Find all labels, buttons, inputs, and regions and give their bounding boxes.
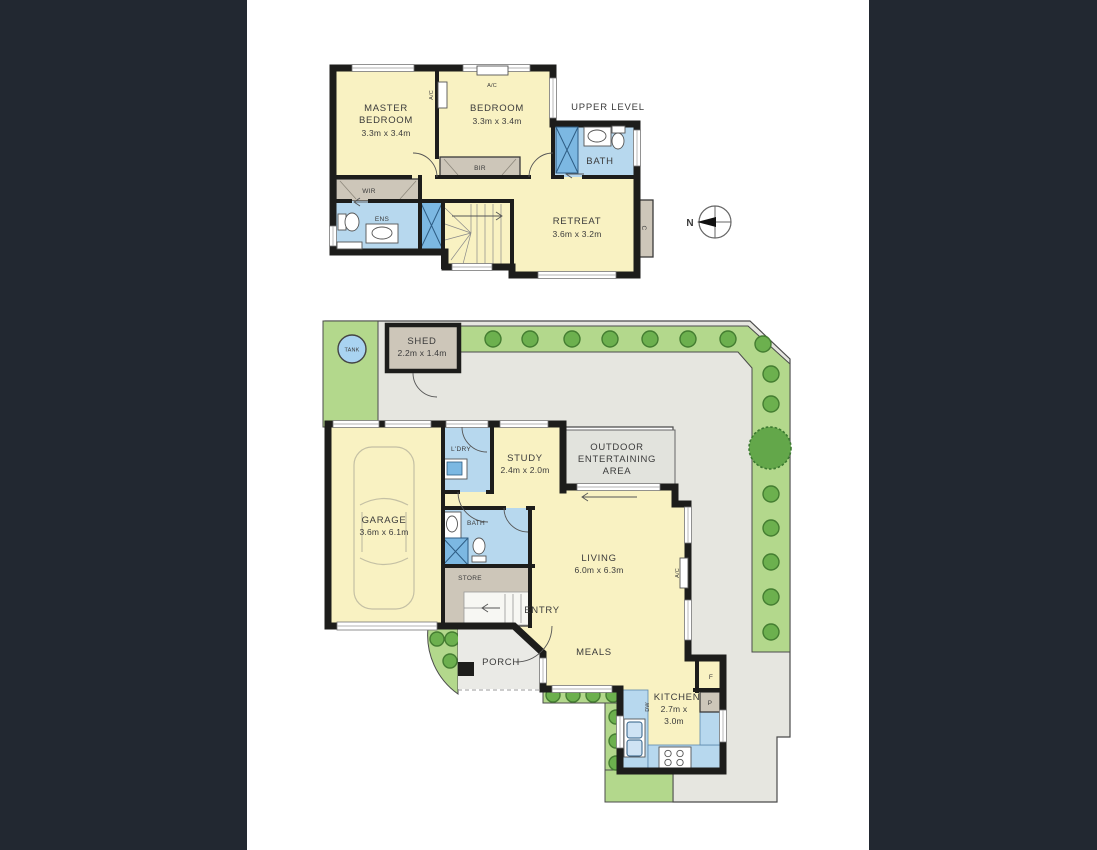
garden-bottom-patch — [605, 770, 673, 802]
label-study-dims: 2.4m x 2.0m — [501, 465, 550, 475]
sink-icon — [624, 719, 645, 757]
label-living-dims: 6.0m x 6.3m — [575, 565, 624, 575]
pantry: P — [700, 692, 720, 712]
basin-icon-ens — [366, 224, 398, 243]
label-retreat-dims: 3.6m x 3.2m — [553, 229, 602, 239]
label-closet-c: C — [640, 226, 647, 231]
label-kitchen: KITCHEN — [654, 692, 701, 703]
label-meals: MEALS — [576, 647, 612, 658]
tree-icon — [749, 427, 791, 469]
compass-icon: N — [686, 206, 731, 238]
tank: TANK — [338, 335, 366, 363]
floorplan-page: A/C A/C MASTER BEDROOM — [0, 0, 1097, 850]
label-laundry: L'DRY — [451, 446, 471, 453]
label-living: LIVING — [581, 553, 616, 564]
basin-icon-bath-ground — [444, 512, 461, 538]
label-master-line1: MASTER — [364, 103, 408, 114]
label-garage-dims: 3.6m x 6.1m — [360, 527, 409, 537]
label-wir: WIR — [362, 188, 376, 195]
label-bath-ground: BATH — [467, 520, 485, 527]
label-master-dims: 3.3m x 3.4m — [362, 128, 411, 138]
room-laundry — [443, 424, 492, 492]
label-tank: TANK — [344, 348, 359, 354]
label-shed-dims: 2.2m x 1.4m — [398, 348, 447, 358]
label-bir: BIR — [474, 165, 486, 172]
label-bath-upper: BATH — [586, 156, 613, 167]
label-bedroom-dims: 3.3m x 3.4m — [473, 116, 522, 126]
label-outdoor-line1: OUTDOOR — [590, 442, 643, 453]
label-shed: SHED — [407, 336, 436, 347]
cooktop-icon — [659, 747, 691, 768]
label-kitchen-dims1: 2.7m x — [661, 704, 688, 714]
toilet-icon-bath-upper — [612, 126, 625, 149]
laundry-trough-icon — [444, 459, 467, 479]
label-dishwasher: DW — [645, 702, 651, 712]
label-garage: GARAGE — [362, 515, 407, 526]
upper-level-plan: A/C A/C MASTER BEDROOM — [320, 55, 745, 295]
shower-icon-ens — [420, 201, 443, 250]
label-porch: PORCH — [482, 657, 520, 668]
label-ens: ENS — [375, 216, 390, 223]
shower-icon-bath-ground — [443, 538, 468, 565]
upper-level-title: UPPER LEVEL — [571, 102, 645, 113]
ground-level-plan: TANK SHED 2.2m x 1.4m — [315, 315, 800, 810]
ac-wall-label: A/C — [429, 90, 435, 100]
label-entry: ENTRY — [524, 605, 560, 616]
label-retreat: RETREAT — [553, 216, 602, 227]
room-wir — [336, 179, 420, 201]
label-outdoor-line3: AREA — [603, 466, 632, 477]
basin-icon-bath-upper — [584, 127, 611, 146]
label-pantry: P — [708, 700, 713, 707]
label-outdoor-line2: ENTERTAINING — [578, 454, 656, 465]
stairs-icon-entry — [464, 592, 530, 625]
label-study: STUDY — [507, 453, 543, 464]
label-store: STORE — [458, 575, 482, 582]
porch-pillar — [458, 662, 474, 676]
shower-icon-bath-upper — [556, 127, 578, 173]
ac-top-label: A/C — [487, 83, 497, 89]
label-master-line2: BEDROOM — [359, 115, 413, 126]
toilet-icon-bath-ground — [472, 538, 486, 562]
label-kitchen-dims2: 3.0m — [664, 716, 684, 726]
label-fridge: F — [709, 674, 713, 681]
compass-north-label: N — [686, 218, 693, 229]
label-bedroom: BEDROOM — [470, 103, 524, 114]
label-ac-living: A/C — [675, 568, 681, 578]
